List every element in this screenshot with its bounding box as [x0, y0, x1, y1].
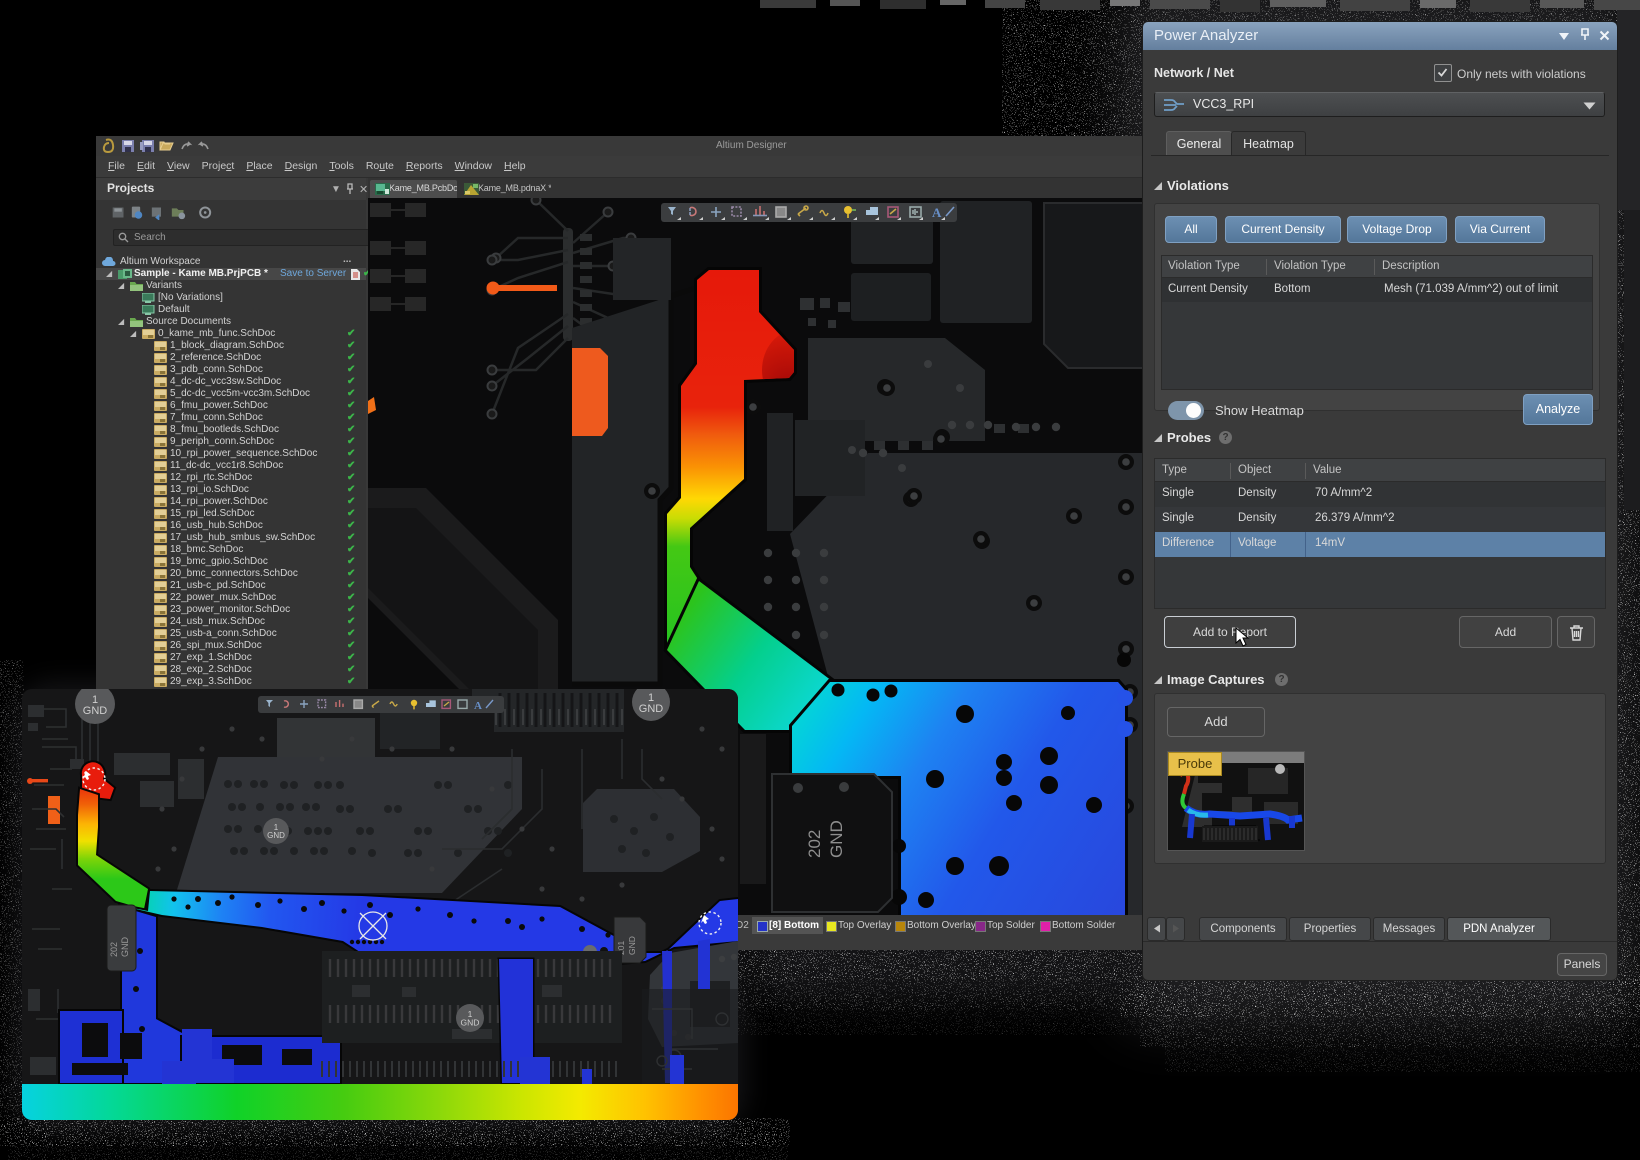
- svg-text:GND: GND: [639, 703, 664, 715]
- svg-text:202: 202: [805, 830, 824, 858]
- svg-text:A: A: [474, 700, 482, 712]
- svg-text:202: 202: [109, 942, 119, 957]
- svg-text:GND: GND: [827, 820, 846, 858]
- svg-text:GND: GND: [120, 937, 130, 958]
- svg-text:GND: GND: [627, 936, 637, 955]
- svg-text:GND: GND: [83, 705, 108, 717]
- svg-text:GND: GND: [267, 831, 285, 840]
- svg-text:A: A: [932, 205, 942, 220]
- svg-text:GND: GND: [461, 1018, 480, 1028]
